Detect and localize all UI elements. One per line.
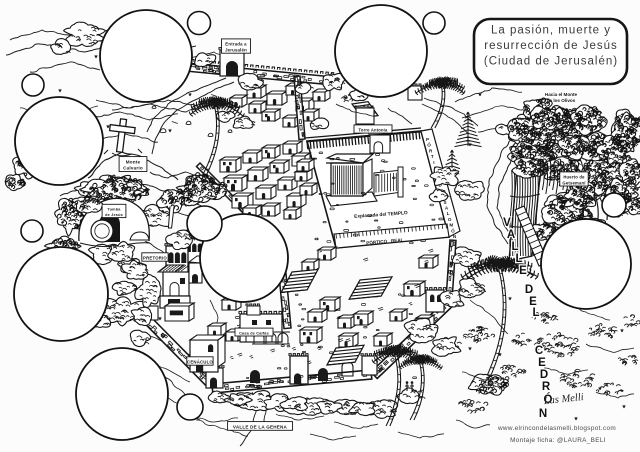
svg-text:R: R: [542, 381, 551, 393]
svg-text:T: T: [431, 154, 434, 159]
svg-text:P: P: [426, 137, 429, 142]
svg-text:E: E: [519, 265, 527, 277]
svg-text:de los Olivos: de los Olivos: [547, 98, 576, 103]
svg-text:C: C: [535, 345, 543, 357]
svg-text:D: D: [525, 284, 533, 296]
svg-text:N: N: [539, 408, 547, 420]
svg-text:O: O: [448, 217, 452, 222]
svg-text:L: L: [515, 253, 522, 265]
svg-text:Casa de Caifás: Casa de Caifás: [239, 331, 269, 335]
svg-text:D: D: [540, 369, 548, 381]
svg-text:CENÁCULO: CENÁCULO: [187, 359, 213, 364]
svg-text:I: I: [433, 160, 434, 165]
svg-text:Montaje ficha: @LAURA_BELI: Montaje ficha: @LAURA_BELI: [510, 437, 606, 444]
svg-text:L: L: [511, 241, 518, 253]
svg-text:Torre Antonia: Torre Antonia: [359, 127, 389, 132]
svg-text:Ó: Ó: [451, 226, 455, 233]
svg-text:resurrección de Jesús: resurrección de Jesús: [484, 40, 618, 52]
svg-text:Jerusalén: Jerusalén: [225, 47, 247, 52]
svg-text:PRETORIO: PRETORIO: [143, 255, 167, 260]
svg-text:de Jesús: de Jesús: [105, 213, 123, 217]
svg-text:L: L: [532, 307, 539, 319]
svg-text:Getsemaní: Getsemaní: [562, 180, 586, 185]
svg-text:V: V: [503, 217, 511, 229]
svg-text:Huerto de: Huerto de: [563, 175, 585, 180]
svg-text:VALLE DE LA GEHENA: VALLE DE LA GEHENA: [233, 425, 288, 430]
svg-text:La pasión, muerte y: La pasión, muerte y: [491, 25, 611, 37]
svg-text:Ó: Ó: [427, 141, 431, 148]
svg-text:E: E: [538, 357, 546, 369]
svg-text:Monte: Monte: [126, 159, 141, 164]
svg-text:(Ciudad de Jerusalén): (Ciudad de Jerusalén): [484, 56, 618, 68]
svg-text:Entrada a: Entrada a: [225, 42, 247, 47]
svg-text:Calvario: Calvario: [123, 166, 143, 171]
svg-text:A: A: [507, 229, 515, 241]
svg-text:www.elrincondelasmelli.blogspo: www.elrincondelasmelli.blogspot.com: [497, 425, 616, 432]
svg-text:M: M: [449, 223, 453, 228]
svg-text:L: L: [447, 211, 450, 216]
svg-text:Tumba: Tumba: [107, 208, 121, 212]
svg-text:Hacia el Monte: Hacia el Monte: [545, 92, 578, 97]
